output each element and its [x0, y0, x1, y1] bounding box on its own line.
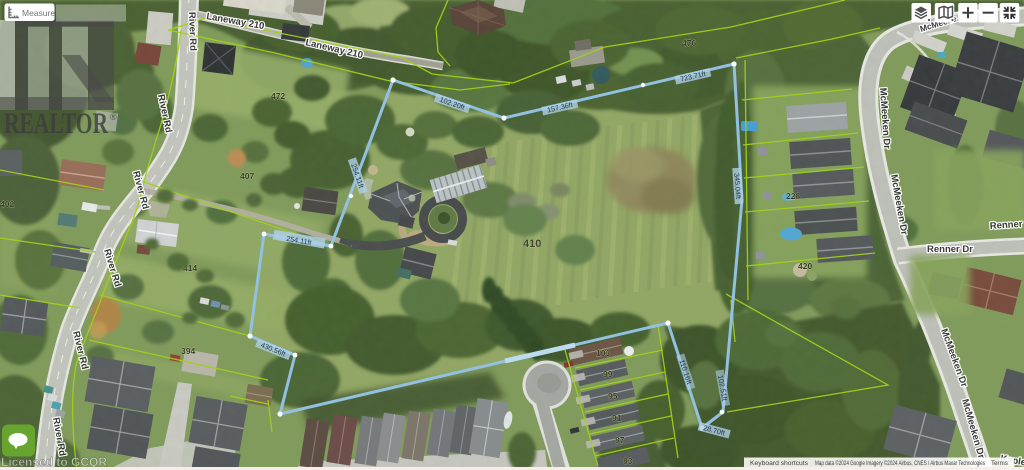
- svg-text:REALTOR: REALTOR: [4, 107, 108, 140]
- svg-text:Keyboard shortcuts: Keyboard shortcuts: [750, 460, 808, 467]
- svg-text:River Rd: River Rd: [186, 12, 198, 52]
- svg-text:®: ®: [110, 112, 117, 122]
- svg-text:Licensed to GCQR: Licensed to GCQR: [1, 455, 107, 469]
- svg-text:Renner Dr: Renner Dr: [927, 244, 973, 255]
- svg-text:Terms: Terms: [991, 460, 1008, 467]
- svg-text:Measure: Measure: [22, 8, 55, 18]
- svg-text:Map data ©2024 Google Imagery: Map data ©2024 Google Imagery ©2024 Airb…: [815, 460, 985, 467]
- svg-text:Renner Dr: Renner Dr: [989, 218, 1024, 232]
